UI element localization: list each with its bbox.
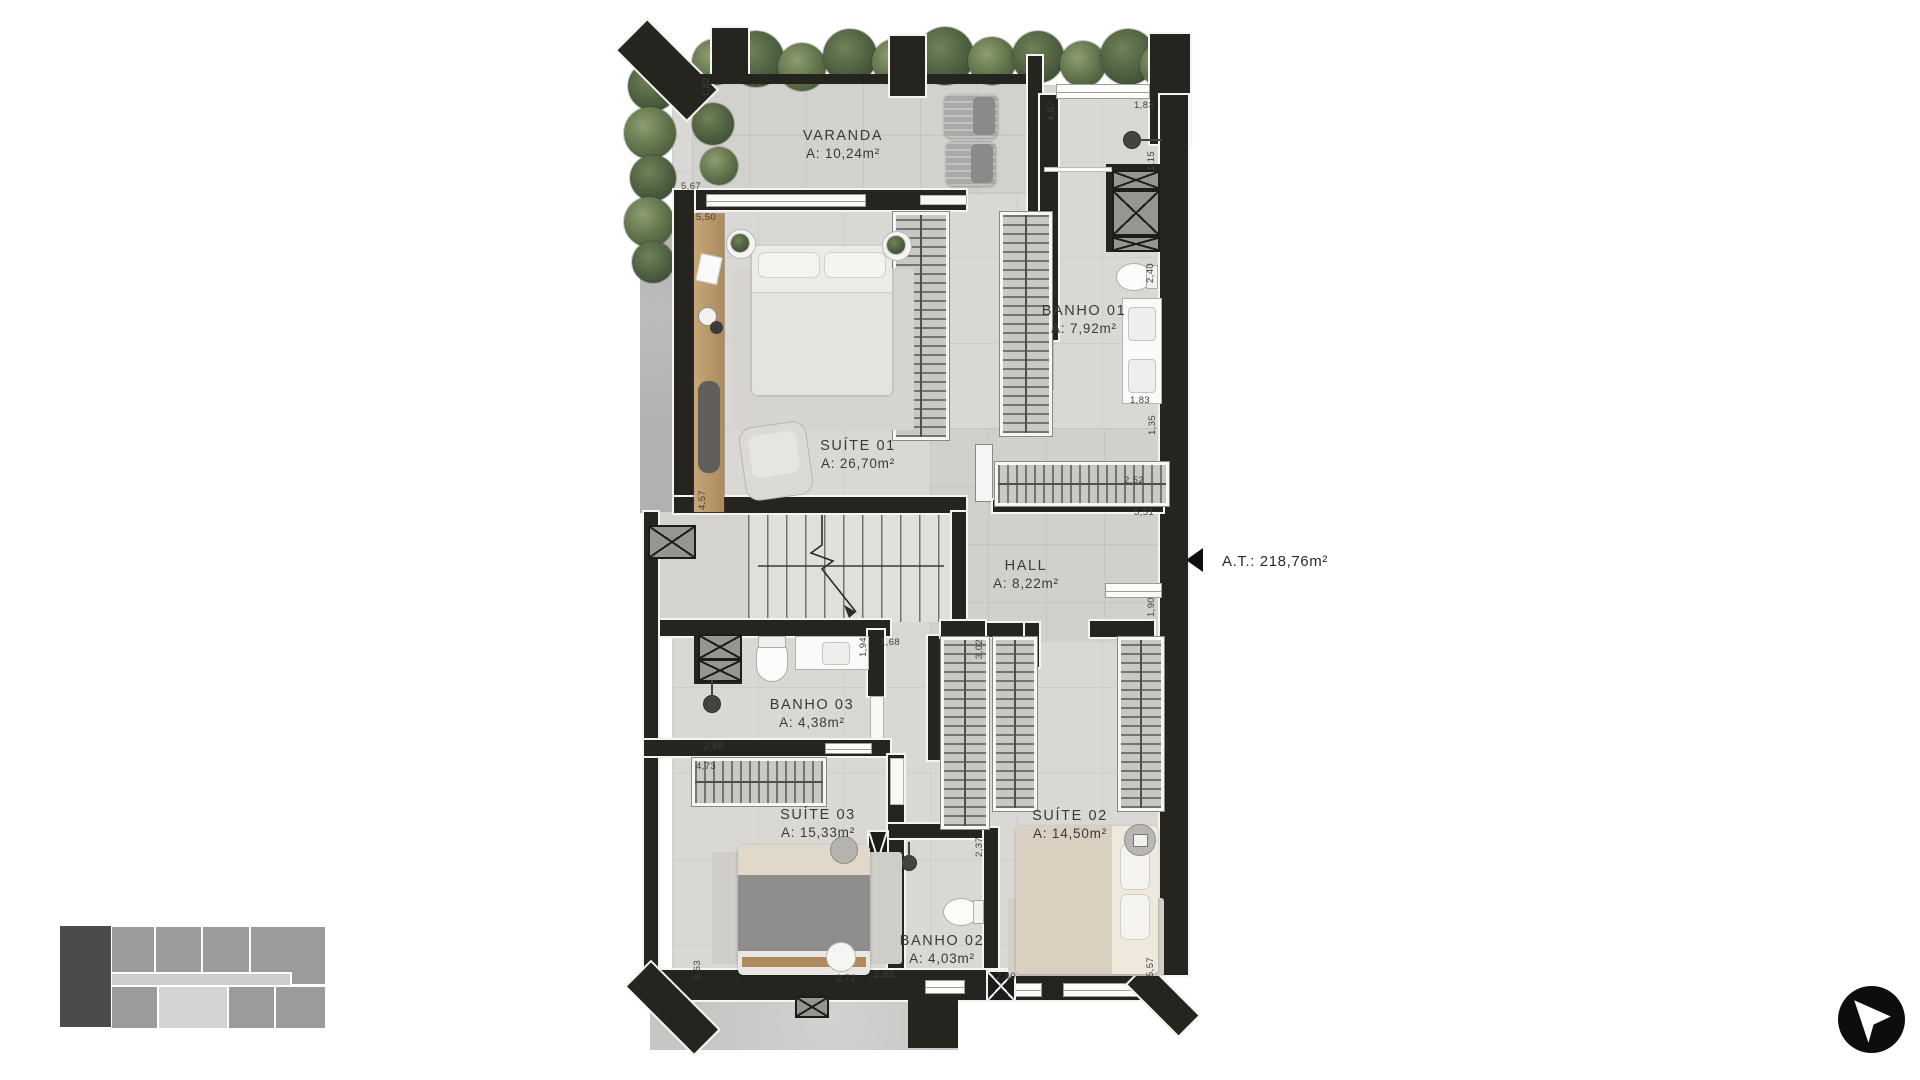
total-area-label: A.T.: 218,76m²	[1222, 553, 1328, 570]
toilet-tank	[758, 636, 786, 648]
window	[825, 743, 872, 754]
dimension-label: 1,15	[1146, 151, 1157, 171]
minimap-unit	[159, 987, 227, 1028]
side-table	[830, 836, 858, 864]
shaft-x-icon	[648, 525, 696, 559]
wall	[1090, 621, 1154, 637]
dimension-label: 2,60	[996, 971, 1016, 982]
room-label-varanda: VARANDA A: 10,24m²	[763, 128, 923, 161]
wall	[890, 36, 925, 96]
shaft-x-icon	[1112, 170, 1160, 190]
room-name: BANHO 02	[862, 933, 1022, 949]
dimension-label: 1,35	[1147, 415, 1158, 435]
room-label-hall: HALL A: 8,22m²	[946, 558, 1106, 591]
shower-glass-partition	[1045, 168, 1111, 171]
duvet	[738, 875, 870, 951]
room-label-suite01: SUÍTE 01 A: 26,70m²	[778, 438, 938, 471]
wall-corridor-suite02closet	[928, 636, 942, 760]
lounge-chair	[946, 141, 996, 186]
sliding-door	[920, 195, 967, 205]
north-arrow-icon	[1838, 986, 1905, 1053]
bed-suite01	[752, 246, 892, 394]
plant-icon	[630, 155, 676, 201]
wall-suite01-left	[674, 190, 694, 512]
wall-block	[908, 1000, 958, 1048]
duvet	[752, 292, 892, 395]
minimap-highlighted-unit	[60, 926, 111, 1027]
shaft-x-icon	[795, 996, 829, 1018]
room-area: A: 10,24m²	[763, 146, 923, 161]
room-area: A: 14,50m²	[990, 826, 1150, 841]
shower-arm	[1138, 139, 1162, 141]
minimap-unit	[276, 987, 325, 1028]
shaft-x-icon	[698, 634, 742, 660]
wall-stairs-bottom	[644, 620, 890, 636]
room-area: A: 8,22m²	[946, 576, 1106, 591]
wall-exterior-right	[1160, 95, 1188, 975]
window	[925, 980, 965, 994]
closet-rack-suite02-b	[993, 637, 1037, 811]
floor-stairs	[748, 512, 952, 622]
room-name: VARANDA	[763, 128, 923, 144]
room-name: BANHO 01	[1004, 303, 1164, 319]
room-area: A: 15,33m²	[738, 825, 898, 840]
shaft-x-icon	[1112, 190, 1160, 236]
dimension-label: 2,37	[974, 837, 985, 857]
decor-tray	[710, 321, 723, 334]
wall	[692, 74, 1032, 84]
room-area: A: 4,03m²	[862, 951, 1022, 966]
minimap-unit	[251, 927, 325, 972]
pillow	[824, 252, 886, 278]
shower-arm	[908, 842, 910, 858]
lounge-chair	[944, 94, 998, 138]
dimension-label: 4,73	[696, 761, 716, 772]
minimap-unit	[112, 987, 157, 1028]
dimension-label: 3,63	[692, 960, 703, 980]
stair-direction-arrow-icon	[748, 512, 952, 622]
room-name: HALL	[946, 558, 1106, 574]
minimap-unit	[229, 987, 274, 1028]
wall	[941, 621, 985, 637]
toilet-tank	[973, 900, 984, 924]
room-label-banho02: BANHO 02 A: 4,03m²	[862, 933, 1022, 966]
total-area-marker-icon	[1186, 548, 1203, 572]
minimap-unit	[203, 927, 249, 972]
wall-exterior-left-lower	[644, 512, 658, 1000]
room-area: A: 26,70m²	[778, 456, 938, 471]
minimap-unit	[292, 972, 325, 984]
plant-icon	[624, 197, 674, 247]
wall-pillar	[975, 444, 993, 502]
closet-rack-suite02-a	[941, 637, 989, 829]
room-area: A: 4,38m²	[732, 715, 892, 730]
plant-icon	[692, 103, 734, 145]
dimension-label: 1,83	[1134, 100, 1154, 111]
room-name: SUÍTE 01	[778, 438, 938, 454]
closet-rack-suite02-c	[1118, 637, 1164, 811]
dimension-label: 2,72	[836, 973, 856, 984]
dimension-label: 2,40	[1145, 263, 1156, 283]
minimap-unit	[156, 927, 201, 972]
sink-basin	[1128, 359, 1156, 393]
room-name: BANHO 03	[732, 697, 892, 713]
shaft-x-icon	[1112, 236, 1160, 252]
plant-icon	[1060, 41, 1106, 87]
lounge-cushion	[971, 144, 993, 183]
wall	[987, 623, 1025, 637]
shaft-x-icon	[698, 659, 742, 682]
dimension-label: 5,57	[1145, 957, 1156, 977]
duvet	[1016, 826, 1112, 974]
plant-icon	[632, 241, 674, 283]
keyplan-minimap	[57, 925, 329, 1030]
room-name: SUÍTE 03	[738, 807, 898, 823]
dimension-label: 3,02	[974, 639, 985, 659]
shower-arm	[711, 680, 713, 698]
minimap-corridor	[112, 974, 290, 985]
shower-head-icon	[902, 856, 916, 870]
dimension-label: 1,82	[701, 77, 712, 97]
dimension-label: 2,52	[1124, 475, 1144, 486]
room-name: SUÍTE 02	[990, 808, 1150, 824]
pillow	[758, 252, 820, 278]
plant-icon	[731, 234, 749, 252]
dimension-label: 5,51	[1134, 507, 1154, 518]
plant-icon	[887, 236, 905, 254]
window-hall	[1105, 583, 1162, 598]
dimension-label: 1,90	[1146, 597, 1157, 617]
pillow	[1120, 894, 1150, 940]
room-label-suite02: SUÍTE 02 A: 14,50m²	[990, 808, 1150, 841]
dimension-label: 1,68	[880, 637, 900, 648]
door-suite03	[890, 758, 904, 805]
dimension-label: 1,83	[1130, 395, 1150, 406]
room-label-suite03: SUÍTE 03 A: 15,33m²	[738, 807, 898, 840]
sink-basin	[822, 642, 850, 665]
room-label-banho01: BANHO 01 A: 7,92m²	[1004, 303, 1164, 336]
floor-plan: VARANDA A: 10,24m² SUÍTE 01 A: 26,70m² B…	[640, 25, 1192, 1057]
window	[706, 194, 866, 207]
pouf	[826, 942, 856, 972]
plant-icon	[624, 107, 676, 159]
wall	[712, 28, 748, 76]
dimension-label: 1,94	[858, 637, 869, 657]
dimension-label: 2,88	[704, 741, 724, 752]
lounge-cushion	[973, 97, 995, 135]
dimension-label: 4,57	[697, 490, 708, 510]
shower-head-icon	[704, 696, 720, 712]
room-label-banho03: BANHO 03 A: 4,38m²	[732, 697, 892, 730]
dimension-label: 4,87	[1046, 101, 1057, 121]
console-runner	[698, 381, 720, 473]
window-top-right	[1056, 84, 1150, 99]
plant-icon	[700, 147, 738, 185]
minimap-unit	[112, 927, 154, 972]
dimension-label: 1,82	[874, 969, 894, 980]
dimension-label: 5,67	[681, 181, 701, 192]
room-area: A: 7,92m²	[1004, 321, 1164, 336]
dimension-label: 5,50	[696, 212, 716, 223]
